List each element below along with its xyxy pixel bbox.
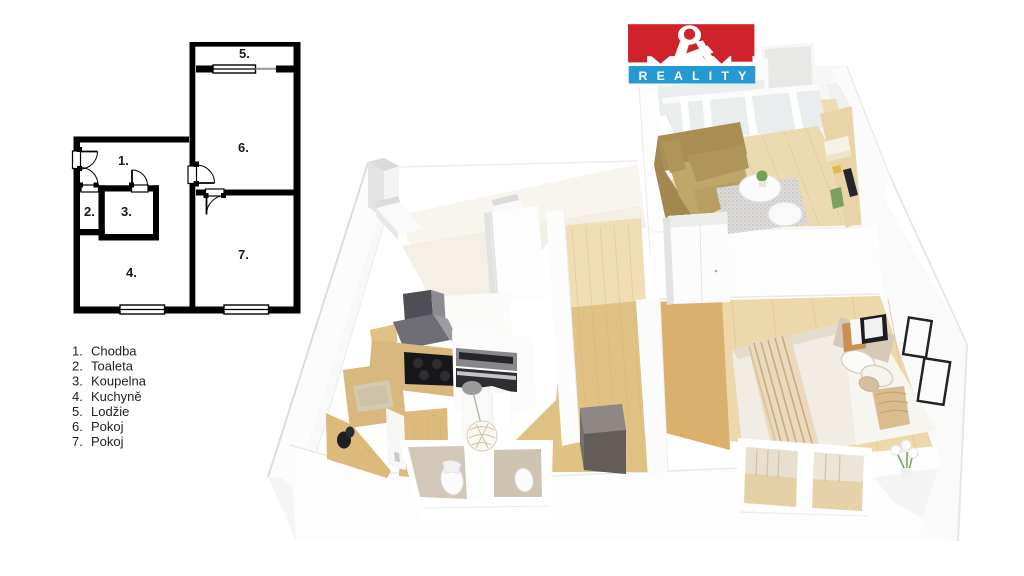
svg-text:7.: 7. <box>238 247 249 262</box>
svg-text:2.: 2. <box>84 204 95 219</box>
svg-text:Kuchyně: Kuchyně <box>91 389 142 404</box>
svg-text:Pokoj: Pokoj <box>91 434 124 449</box>
svg-text:3.: 3. <box>121 204 132 219</box>
svg-text:Toaleta: Toaleta <box>91 359 134 374</box>
svg-text:REALITY: REALITY <box>638 69 755 83</box>
svg-text:6.: 6. <box>72 419 83 434</box>
svg-text:Koupelna: Koupelna <box>91 374 147 389</box>
svg-text:3.: 3. <box>72 374 83 389</box>
svg-text:1.: 1. <box>72 344 83 359</box>
svg-text:Pokoj: Pokoj <box>91 419 124 434</box>
svg-text:2.: 2. <box>72 359 83 374</box>
svg-text:7.: 7. <box>72 434 83 449</box>
svg-text:4.: 4. <box>72 389 83 404</box>
svg-text:6.: 6. <box>238 140 249 155</box>
svg-text:5.: 5. <box>72 404 83 419</box>
svg-text:4.: 4. <box>126 265 137 280</box>
svg-text:5.: 5. <box>239 46 250 61</box>
svg-text:Chodba: Chodba <box>91 344 137 359</box>
svg-text:Lodžie: Lodžie <box>91 404 129 419</box>
svg-text:1.: 1. <box>118 153 129 168</box>
